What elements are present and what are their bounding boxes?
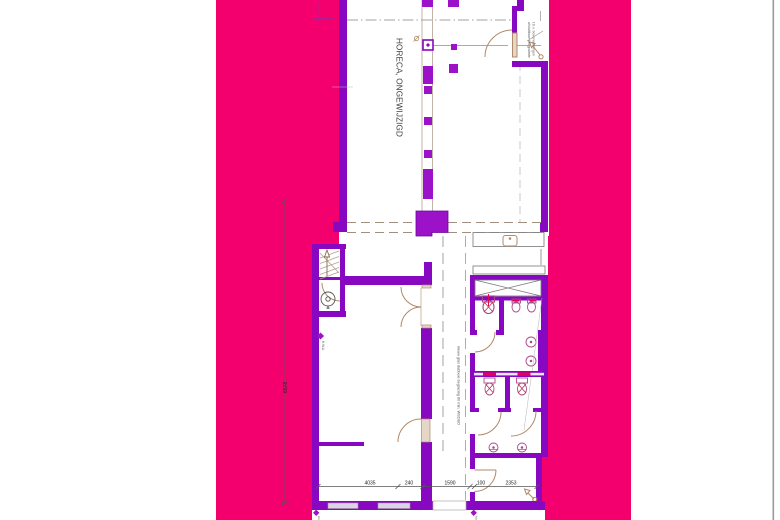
svg-text:t.b.v. bovenwoningen: t.b.v. bovenwoningen xyxy=(532,22,536,56)
svg-text:4035: 4035 xyxy=(364,481,375,487)
svg-text:6578: 6578 xyxy=(283,382,289,393)
svg-text:kozijn: kozijn xyxy=(475,516,479,520)
svg-text:2353: 2353 xyxy=(505,481,516,487)
svg-text:nieuw glas dubbele beglazing 6: nieuw glas dubbele beglazing 60 min. WBD… xyxy=(457,346,461,425)
svg-text:100: 100 xyxy=(477,481,486,487)
svg-text:240: 240 xyxy=(405,481,414,487)
svg-text:H.W.A.: H.W.A. xyxy=(321,341,325,351)
svg-text:kozijn: kozijn xyxy=(317,516,321,520)
svg-text:bestaand kozijn: bestaand kozijn xyxy=(317,2,321,26)
svg-text:HORECA, ONGEWIJZIGD: HORECA, ONGEWIJZIGD xyxy=(395,38,405,137)
svg-text:1590: 1590 xyxy=(444,481,455,487)
svg-text:afsluitbare bergruimte: afsluitbare bergruimte xyxy=(527,22,531,58)
